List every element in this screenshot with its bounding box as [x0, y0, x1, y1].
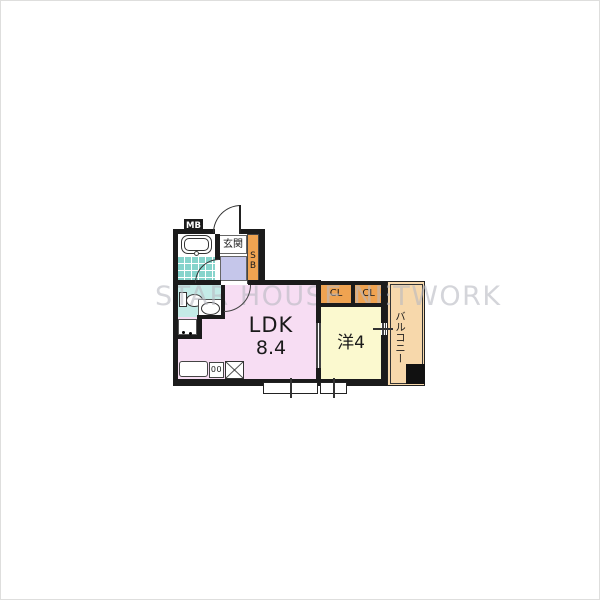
kitchen-stove: 00 — [209, 362, 224, 378]
refrigerator-space — [225, 361, 244, 379]
wall-closet-divider — [351, 285, 355, 303]
entrance-step: 玄関 — [219, 235, 247, 254]
sliding-door-line1 — [316, 323, 318, 368]
wall-left-exterior — [173, 229, 178, 386]
entrance-label: 玄関 — [220, 236, 246, 254]
window-ldk-tick — [290, 378, 292, 398]
washer-pan — [178, 319, 197, 335]
western-room-label: 洋4 — [321, 328, 381, 353]
ldk-label: LDK — [231, 313, 311, 337]
wall-top-left — [173, 229, 215, 234]
floorplan-canvas: STAR HOUSE NETWORK バルコニー CL CL 玄関 SB MB … — [0, 0, 600, 600]
wall-closet-bottom — [317, 303, 387, 307]
hallway-floor — [220, 256, 247, 281]
balcony-label: バルコニー — [394, 304, 408, 370]
kitchen-sink — [179, 361, 208, 377]
shoe-box: SB — [247, 234, 259, 284]
wall-bath-divider — [215, 234, 220, 260]
balcony-corner-block — [406, 364, 425, 384]
ldk-size-label: 8.4 — [231, 337, 311, 359]
wall-western-right-upper — [381, 281, 387, 323]
wall-entrance-right — [259, 229, 265, 285]
entrance-door-arc — [213, 205, 241, 233]
wall-ldk-top — [259, 280, 321, 285]
wall-washer-nook-bottom — [173, 335, 202, 339]
watermark-text: STAR HOUSE NETWORK — [155, 281, 502, 312]
shoe-box-label: SB — [248, 247, 258, 275]
stove-burners-label: 00 — [210, 363, 223, 377]
bathtub-drain — [194, 251, 199, 256]
window-western-tick — [333, 378, 335, 398]
entrance-door-leaf — [239, 205, 241, 234]
washer-drain-dot — [182, 331, 185, 334]
bathtub-inner-line — [184, 238, 209, 251]
